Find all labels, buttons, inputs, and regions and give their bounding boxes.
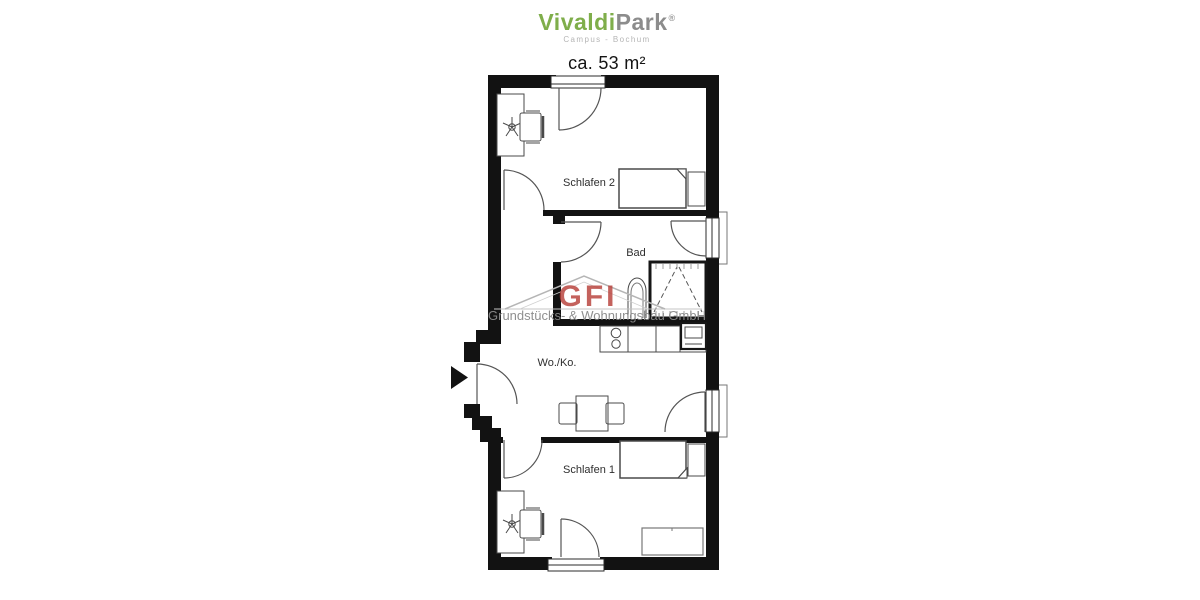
door-schlafen1 (504, 440, 542, 478)
floorplan-page: VivaldiPark® Campus - Bochum ca. 53 m² (0, 0, 1200, 600)
room-label-schlafen1: Schlafen 1 (563, 464, 615, 476)
window-right-bad (706, 212, 727, 264)
door-bad (561, 222, 601, 262)
sideboard (642, 528, 703, 555)
door-balcony-top (559, 88, 601, 130)
room-label-bad: Bad (626, 247, 646, 259)
kitchen-counter (600, 323, 706, 352)
chair (559, 403, 577, 424)
sink-icon (681, 323, 706, 349)
room-schlafen1-furniture (497, 441, 705, 555)
room-schlafen2-furniture (497, 94, 705, 208)
watermark-company-text: Grundstücks- & Wohnungsbau GmbH (488, 308, 706, 323)
door-bad-right (671, 221, 706, 256)
door-balcony-living (665, 392, 705, 432)
door-schlafen2 (504, 170, 544, 210)
window-right-living (706, 385, 727, 437)
room-living-furniture (559, 323, 706, 431)
entrance-arrow-icon (451, 366, 468, 389)
dining-table (576, 396, 608, 431)
window-top (551, 76, 605, 88)
room-label-schlafen2: Schlafen 2 (563, 177, 615, 189)
room-label-living: Wo./Ko. (538, 357, 577, 369)
chair (606, 403, 624, 424)
window-bottom (548, 559, 604, 571)
bed (620, 441, 705, 478)
dining-set (559, 396, 624, 431)
floorplan-drawing: Schlafen 2 Bad Wo./Ko. Schlafen 1 GFI Gr… (0, 0, 1200, 600)
bed (619, 169, 705, 208)
door-entrance (477, 364, 517, 404)
door-balcony-bottom (561, 519, 599, 557)
